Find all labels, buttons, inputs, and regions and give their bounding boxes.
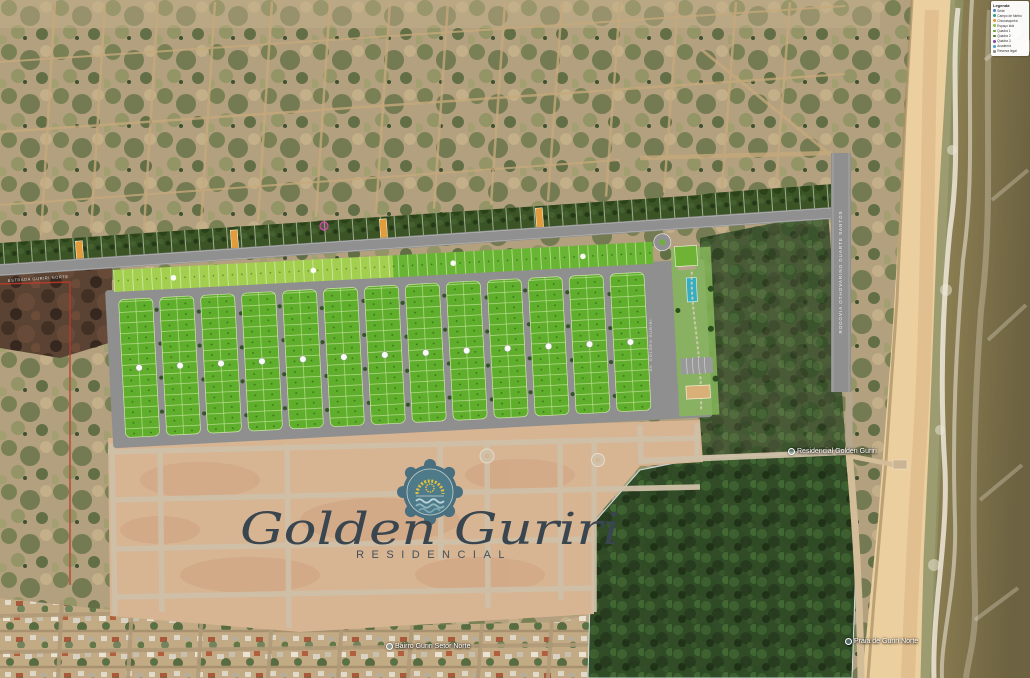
parking [680,357,713,375]
top-field-row [0,0,880,28]
map-canvas: RODOVIA OTHOVARINO DUARTE SANTOS ESTRADA… [0,0,1030,678]
legend-swatch [993,50,996,53]
pin-icon [845,638,852,645]
block-marker [218,360,225,367]
legend-title: Legenda [993,3,1027,8]
legend-swatch [993,19,996,22]
block-marker [586,341,593,348]
dune-forest [700,212,846,455]
corner-green-lot [675,245,698,266]
legend: Legenda Sede Campo de futebol Churrasque… [991,1,1029,56]
legend-row: Espaço kids [993,24,1027,28]
block-marker [340,354,347,361]
block-marker [422,349,429,356]
legend-swatch [993,14,996,17]
pin-icon [788,448,795,455]
legend-swatch [993,24,996,27]
block-marker [136,364,143,371]
block-marker [504,345,511,352]
coastal-road-label: RODOVIA OTHOVARINO DUARTE SANTOS [838,210,843,333]
legend-swatch [993,40,996,43]
village-pin: Bairro Guriri Setor Norte [386,643,470,650]
legend-row: Campo de futebol [993,14,1027,18]
reserved-marker-pink [320,222,328,230]
legend-row: Churrasqueira [993,19,1027,23]
legend-row: Sede [993,9,1027,13]
block-marker [299,356,306,363]
legend-row: Academia [993,44,1027,48]
block-marker [545,343,552,350]
legend-swatch [993,35,996,38]
block-marker [381,351,388,358]
pin-icon [386,643,393,650]
logo-name: Golden Guriri [240,504,620,555]
development-pin: Residencial Golden Guriri [788,448,877,455]
block-marker [177,362,184,369]
legend-row: Quadra 1 [993,29,1027,33]
legend-swatch [993,45,996,48]
aerial-masterplan: RODOVIA OTHOVARINO DUARTE SANTOS ESTRADA… [0,0,1030,678]
block-marker [463,347,470,354]
legend-row: Quadra 3 [993,39,1027,43]
block-marker [259,358,266,365]
legend-swatch [993,9,996,12]
sports-court [686,385,711,399]
beach-pin: Praia de Guriri Norte [845,638,918,645]
legend-swatch [993,30,996,33]
logo-subtitle: RESIDENCIAL [356,549,512,561]
legend-row: Reserva legal [993,49,1027,53]
entrance-road-label: AV. GOLDEN GURIRI [648,319,653,372]
legend-row: Quadra 2 [993,34,1027,38]
block-marker [627,339,634,346]
